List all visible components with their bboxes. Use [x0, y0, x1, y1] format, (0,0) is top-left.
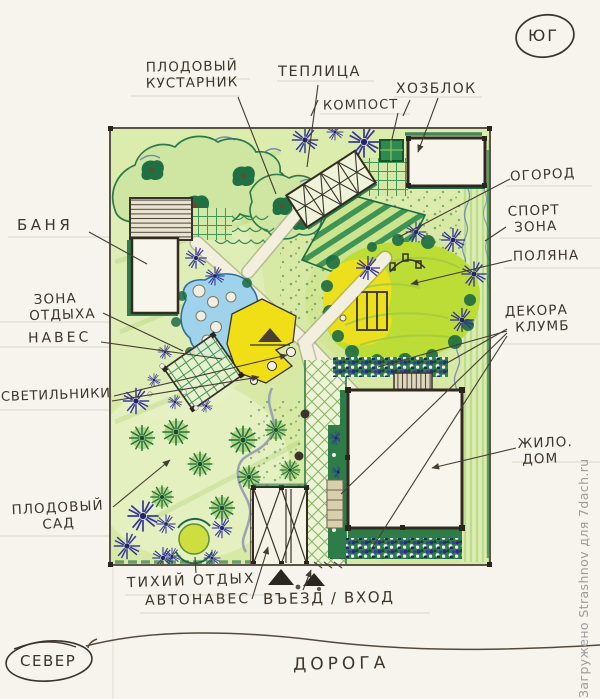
- road-line: [86, 633, 600, 649]
- compass-south-label: ЮГ: [528, 26, 559, 45]
- garden-plan-scan: ПЛОДОВЫЙ КУСТАРНИК ТЕПЛИЦА ХОЗБЛОК КОМПО…: [0, 0, 600, 699]
- shed-building: [406, 136, 487, 189]
- compass-north-label: СЕВЕР: [20, 652, 76, 670]
- entrance-markers: [268, 562, 342, 591]
- label-canopy: НАВЕС: [28, 329, 92, 346]
- label-compost: КОМПОСТ: [323, 98, 399, 114]
- label-decorative-beds: ДЕКОРА КЛУМБ: [504, 303, 569, 336]
- label-carport: АВТОНАВЕС: [145, 591, 250, 609]
- label-shed: ХОЗБЛОК: [396, 81, 476, 97]
- label-orchard: ПЛОДОВЫЙ САД: [11, 499, 105, 535]
- label-dwelling-house: ЖИЛО. ДОМ: [517, 435, 573, 468]
- label-fruit-shrub: ПЛОДОВЫЙ КУСТАРНИК: [133, 59, 252, 92]
- label-rest-zone: ЗОНА ОТДЫХА: [28, 291, 95, 324]
- house-side-steps: [327, 480, 343, 528]
- lamp-post: [301, 410, 310, 419]
- house-building: [327, 373, 465, 538]
- lamp-post: [295, 452, 304, 461]
- patio-lamp: [268, 362, 277, 371]
- label-greenhouse: ТЕПЛИЦА: [278, 64, 361, 81]
- carport-structure: [248, 485, 309, 566]
- watermark-credit: Загружено Strashnov для 7dach.ru: [576, 428, 598, 698]
- label-glade: ПОЛЯНА: [513, 248, 580, 265]
- compost-bin: [380, 140, 403, 161]
- label-road: ДОРОГА: [293, 654, 390, 675]
- label-entrance: ВЪЕЗД / ВХОД: [263, 589, 395, 609]
- label-sport-zone: СПОРТ ЗОНА: [507, 203, 560, 236]
- patio-lamp: [287, 348, 296, 357]
- label-bathhouse: БАНЯ: [17, 217, 73, 234]
